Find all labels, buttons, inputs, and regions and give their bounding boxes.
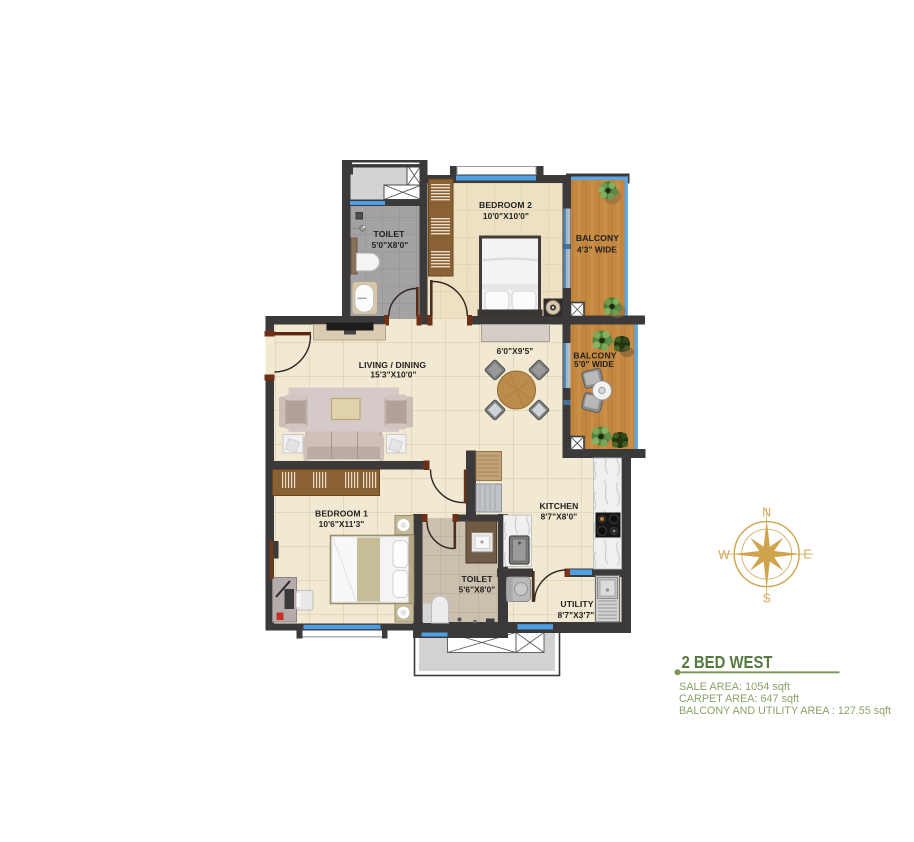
svg-text:N: N	[762, 506, 771, 520]
svg-text:5'0"X8'0": 5'0"X8'0"	[372, 240, 409, 250]
svg-text:TOILET: TOILET	[374, 229, 406, 239]
svg-text:UTILITY: UTILITY	[560, 599, 593, 609]
svg-text:2 BED WEST: 2 BED WEST	[682, 652, 773, 672]
svg-text:10'6"X11'3": 10'6"X11'3"	[319, 519, 365, 529]
svg-text:LIVING / DINING: LIVING / DINING	[359, 360, 427, 370]
svg-text:BALCONY AND UTILITY AREA : 127: BALCONY AND UTILITY AREA : 127.55 sqft	[679, 705, 891, 717]
svg-text:S: S	[763, 592, 771, 606]
svg-text:4'3" WIDE: 4'3" WIDE	[577, 245, 617, 255]
svg-text:W: W	[718, 548, 730, 562]
svg-text:KITCHEN: KITCHEN	[540, 501, 579, 511]
svg-text:8'7"X3'7": 8'7"X3'7"	[558, 610, 595, 620]
svg-text:8'7"X8'0": 8'7"X8'0"	[541, 512, 578, 522]
svg-text:E: E	[803, 548, 811, 562]
svg-text:BEDROOM 2: BEDROOM 2	[479, 200, 532, 210]
svg-text:5'0" WIDE: 5'0" WIDE	[574, 359, 614, 369]
svg-text:SALE AREA: 1054 sqft: SALE AREA: 1054 sqft	[679, 681, 790, 693]
svg-text:TOILET: TOILET	[462, 574, 494, 584]
svg-text:10'0"X10'0": 10'0"X10'0"	[483, 211, 529, 221]
svg-text:BEDROOM 1: BEDROOM 1	[315, 509, 368, 519]
svg-text:BALCONY: BALCONY	[576, 233, 619, 243]
svg-text:6'0"X9'5": 6'0"X9'5"	[497, 346, 534, 356]
svg-text:CARPET AREA: 647 sqft: CARPET AREA: 647 sqft	[679, 693, 799, 705]
svg-text:5'6"X8'0": 5'6"X8'0"	[459, 585, 496, 595]
svg-text:15'3"X10'0": 15'3"X10'0"	[370, 370, 416, 380]
